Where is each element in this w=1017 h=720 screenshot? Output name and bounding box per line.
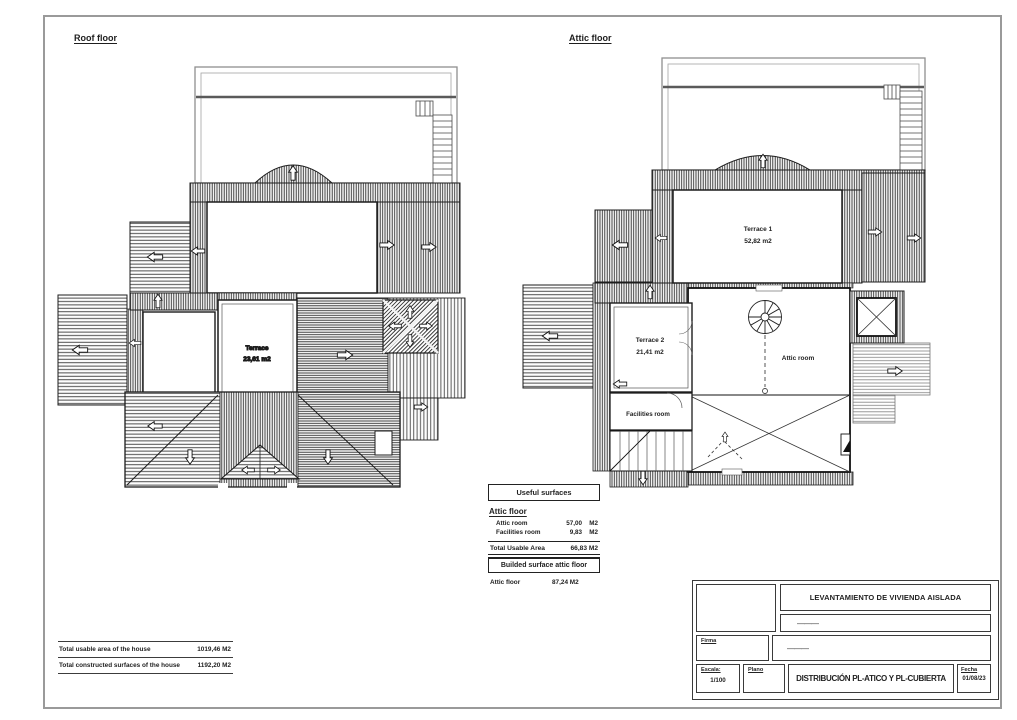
- roof-floor-title: Roof floor: [74, 33, 117, 43]
- attic-terrace2-room: Terrace 2 21,41 m2: [610, 303, 692, 392]
- surface-row-value: 57,00: [556, 520, 582, 527]
- facilities-room-label: Facilities room: [626, 411, 670, 418]
- surface-row-label: Facilities room: [496, 529, 556, 536]
- house-total-row: Total usable area of the house 1019,46 M…: [58, 642, 233, 658]
- roof-floor-plan: Terrace 23,61 m2: [55, 55, 475, 495]
- roof-upper-opening: [207, 202, 377, 293]
- project-title: LEVANTAMIENTO DE VIVIENDA AISLADA: [780, 584, 991, 611]
- surface-row-value: 9,83: [556, 529, 582, 536]
- roof-terrace-area: 23,61 m2: [243, 356, 271, 363]
- logo-box: [696, 584, 776, 632]
- roof-chimney: [375, 431, 392, 455]
- house-total-label: Total usable area of the house: [59, 646, 151, 653]
- total-usable-row: Total Usable Area 66,83 M2: [488, 541, 600, 554]
- terrace1-area: 52,82 m2: [744, 238, 772, 245]
- total-usable-label: Total Usable Area: [490, 545, 545, 552]
- built-surface-row-label: Attic floor: [490, 579, 552, 586]
- attic-terrace1-room: Terrace 1 52,82 m2: [673, 190, 842, 283]
- attic-room-label: Attic room: [782, 355, 815, 362]
- firma-box: Firma: [696, 635, 769, 661]
- total-usable-value: 66,83 M2: [571, 545, 599, 552]
- useful-surfaces-section: Attic floor: [489, 507, 600, 516]
- built-surface-row-value: 87,24 M2: [552, 579, 579, 586]
- surface-row-unit: M2: [582, 520, 598, 527]
- title-block: LEVANTAMIENTO DE VIVIENDA AISLADA ——— Fi…: [692, 580, 999, 700]
- plano-label: Plano: [744, 665, 784, 673]
- roof-mass-upper: [130, 165, 460, 293]
- escala-value: 1/100: [697, 677, 739, 684]
- surface-row: Facilities room 9,83 M2: [488, 528, 600, 537]
- roof-open-terrace: [195, 67, 457, 183]
- terrace2-name: Terrace 2: [636, 337, 665, 344]
- house-total-label: Total constructed surfaces of the house: [59, 662, 180, 669]
- firma-value: ———: [787, 644, 808, 653]
- facilities-room: Facilities room: [610, 393, 692, 430]
- useful-surfaces-panel: Useful surfaces Attic floor Attic room 5…: [488, 484, 600, 558]
- attic-floor-title: Attic floor: [569, 33, 612, 43]
- project-ref-box: ———: [780, 614, 991, 632]
- surface-row-unit: M2: [582, 529, 598, 536]
- useful-surfaces-title: Useful surfaces: [488, 484, 600, 501]
- project-ref: ———: [797, 619, 818, 628]
- fecha-label: Fecha: [958, 665, 990, 673]
- roof-terrace-name: Terrace: [245, 345, 268, 352]
- fecha-box: Fecha 01/08/23: [957, 664, 991, 693]
- roof-terrace-room: Terrace 23,61 m2: [218, 300, 297, 405]
- firma-value-box: ———: [772, 635, 991, 661]
- surface-row-label: Attic room: [496, 520, 556, 527]
- attic-lower-stair-icon: [610, 431, 692, 471]
- spiral-stair-icon: [749, 301, 782, 334]
- surface-row: Attic room 57,00 M2: [488, 519, 600, 528]
- house-total-value: 1192,20 M2: [198, 662, 231, 669]
- escala-box: Escala: 1/100: [696, 664, 740, 693]
- drawing-sheet: { "plans": { "roof": { "title": "Roof fl…: [0, 0, 1017, 720]
- plano-box: Plano: [743, 664, 785, 693]
- attic-room: Attic room: [688, 285, 850, 475]
- terrace1-name: Terrace 1: [744, 226, 773, 233]
- built-surface-panel: Builded surface attic floor Attic floor …: [488, 558, 600, 586]
- firma-label: Firma: [697, 636, 768, 644]
- drawing-title: DISTRIBUCIÓN PL-ATICO Y PL-CUBIERTA: [788, 664, 954, 693]
- terrace2-area: 21,41 m2: [636, 349, 664, 356]
- built-surface-row: Attic floor 87,24 M2: [488, 579, 600, 586]
- escala-label: Escala:: [697, 665, 739, 673]
- roof-mass-bottom: [125, 392, 400, 491]
- attic-open-terrace: [662, 58, 925, 170]
- built-surface-title: Builded surface attic floor: [488, 558, 600, 573]
- fecha-value: 01/08/23: [958, 676, 990, 682]
- skylight-icon: [850, 291, 904, 343]
- house-total-row: Total constructed surfaces of the house …: [58, 658, 233, 674]
- attic-floor-plan: Terrace 1 52,82 m2 Attic room Terrace 2 …: [510, 55, 940, 515]
- house-totals: Total usable area of the house 1019,46 M…: [58, 641, 233, 674]
- house-total-value: 1019,46 M2: [197, 646, 231, 653]
- roof-side-opening: [143, 312, 215, 403]
